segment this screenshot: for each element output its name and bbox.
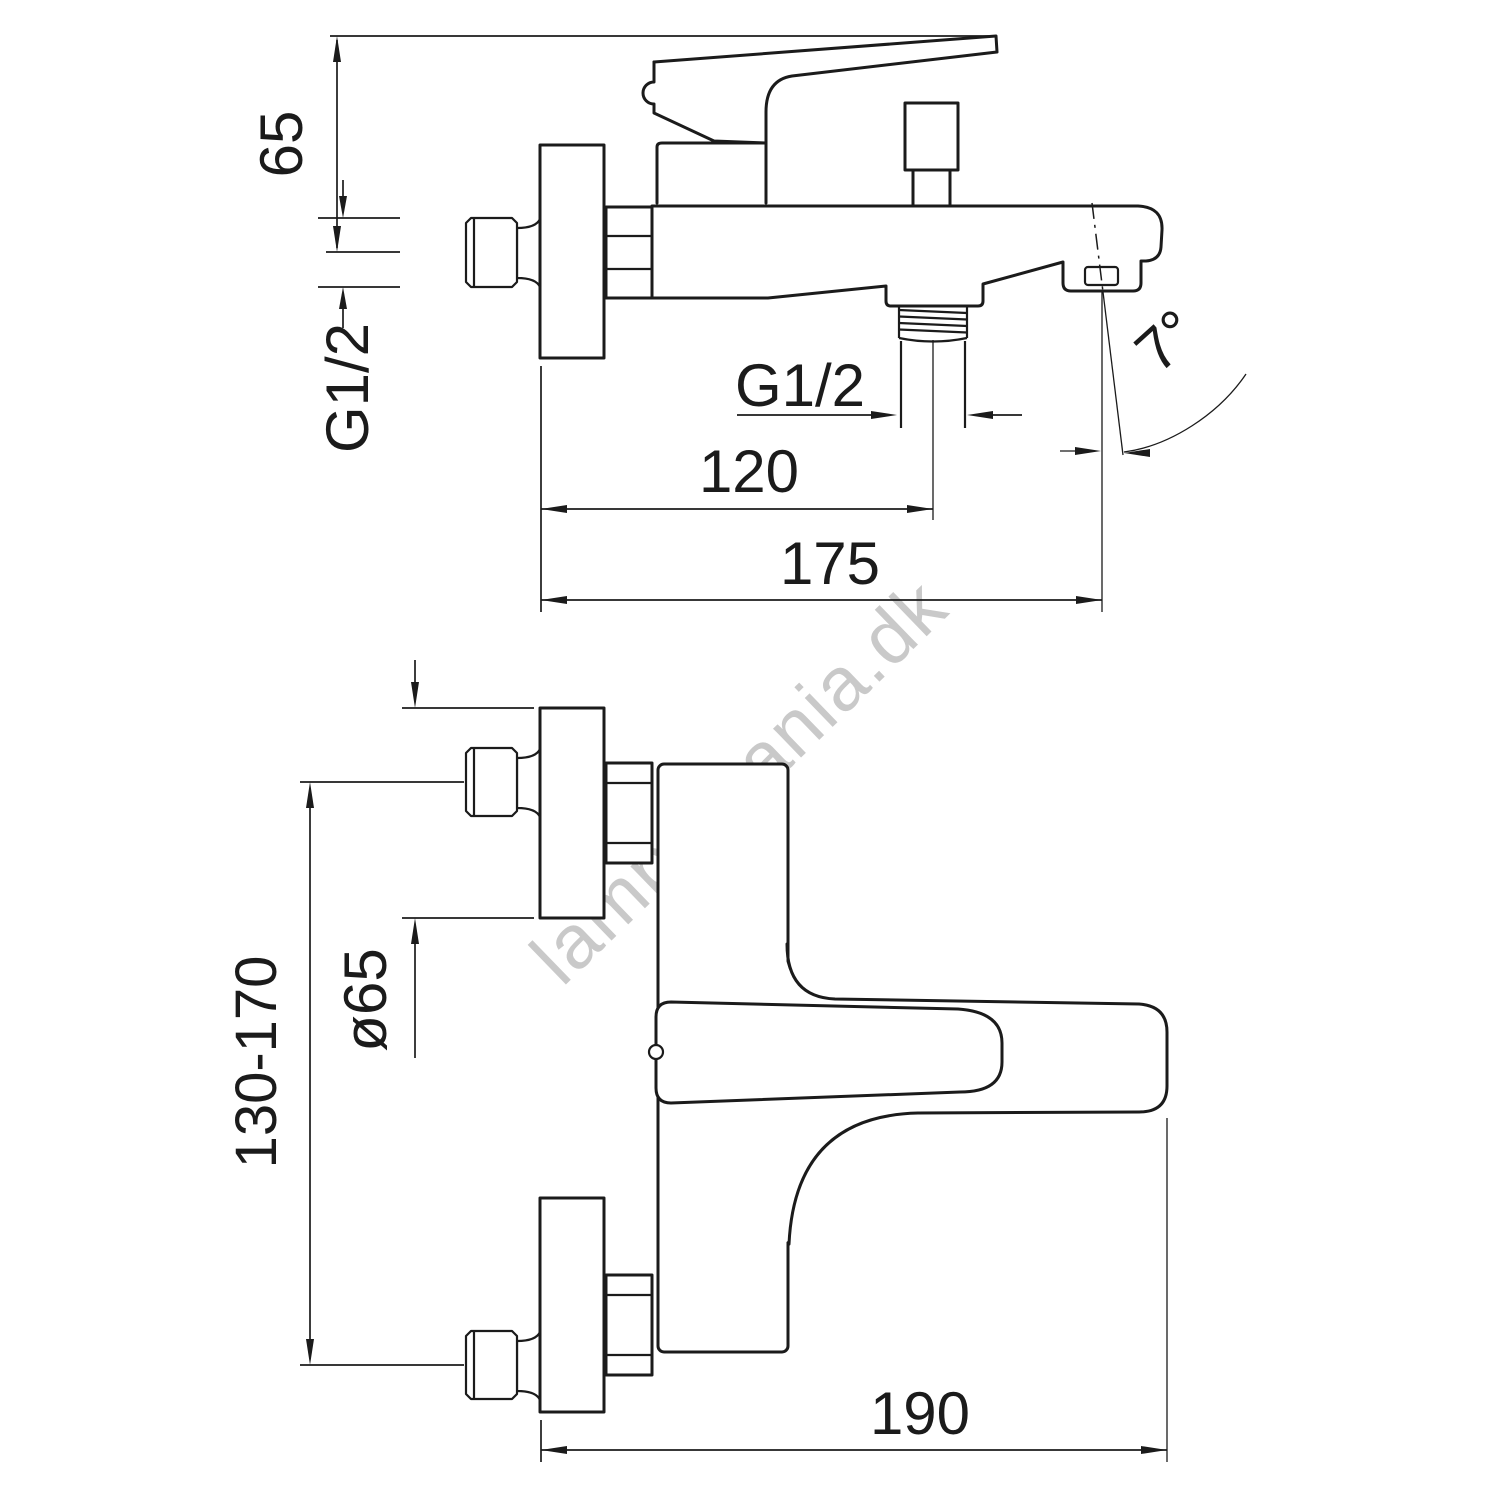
- dim-g12-wall-label: G1/2: [314, 323, 381, 453]
- dim-65-label: 65: [248, 111, 315, 178]
- bath-mixer-dimension-drawing: lampemania.dk: [0, 0, 1500, 1500]
- dimension-spout-reach: 175: [541, 530, 1102, 604]
- dimension-flange-diameter: ø65: [332, 660, 534, 1058]
- lever-handle-front: [649, 1002, 1002, 1103]
- dim-130-170-label: 130-170: [224, 956, 289, 1169]
- handle-set-screw: [649, 1045, 663, 1059]
- dimension-connection-span: 130-170: [224, 782, 464, 1365]
- dim-g12-shower-label: G1/2: [735, 352, 865, 419]
- dim-190-label: 190: [870, 1380, 970, 1447]
- dimension-shower-thread: G1/2: [735, 352, 1022, 419]
- upper-mounting-nut: [606, 763, 652, 863]
- mounting-nut-side: [606, 207, 652, 298]
- dim-120-label: 120: [699, 438, 799, 505]
- shower-outlet-thread: [899, 306, 967, 520]
- technical-drawing-page: lampemania.dk: [0, 0, 1500, 1500]
- upper-wall-flange: [540, 708, 604, 918]
- wall-flange-side: [540, 145, 604, 358]
- front-view: ø65 130-170 190: [224, 660, 1167, 1462]
- faucet-body-side: [652, 206, 1162, 306]
- dim-o65-label: ø65: [332, 948, 399, 1051]
- dimension-wall-thread: G1/2: [314, 180, 400, 453]
- side-view: 7° 65 G1/2 G1/2: [248, 36, 1246, 612]
- lower-mounting-nut: [606, 1275, 652, 1375]
- diverter-knob: [905, 103, 958, 206]
- dim-spout-angle-label: 7°: [1123, 297, 1210, 385]
- lower-wall-flange: [540, 1198, 604, 1412]
- lower-wall-connection: [466, 1198, 652, 1412]
- dim-175-label: 175: [780, 530, 880, 597]
- wall-nipple-side: [466, 218, 540, 287]
